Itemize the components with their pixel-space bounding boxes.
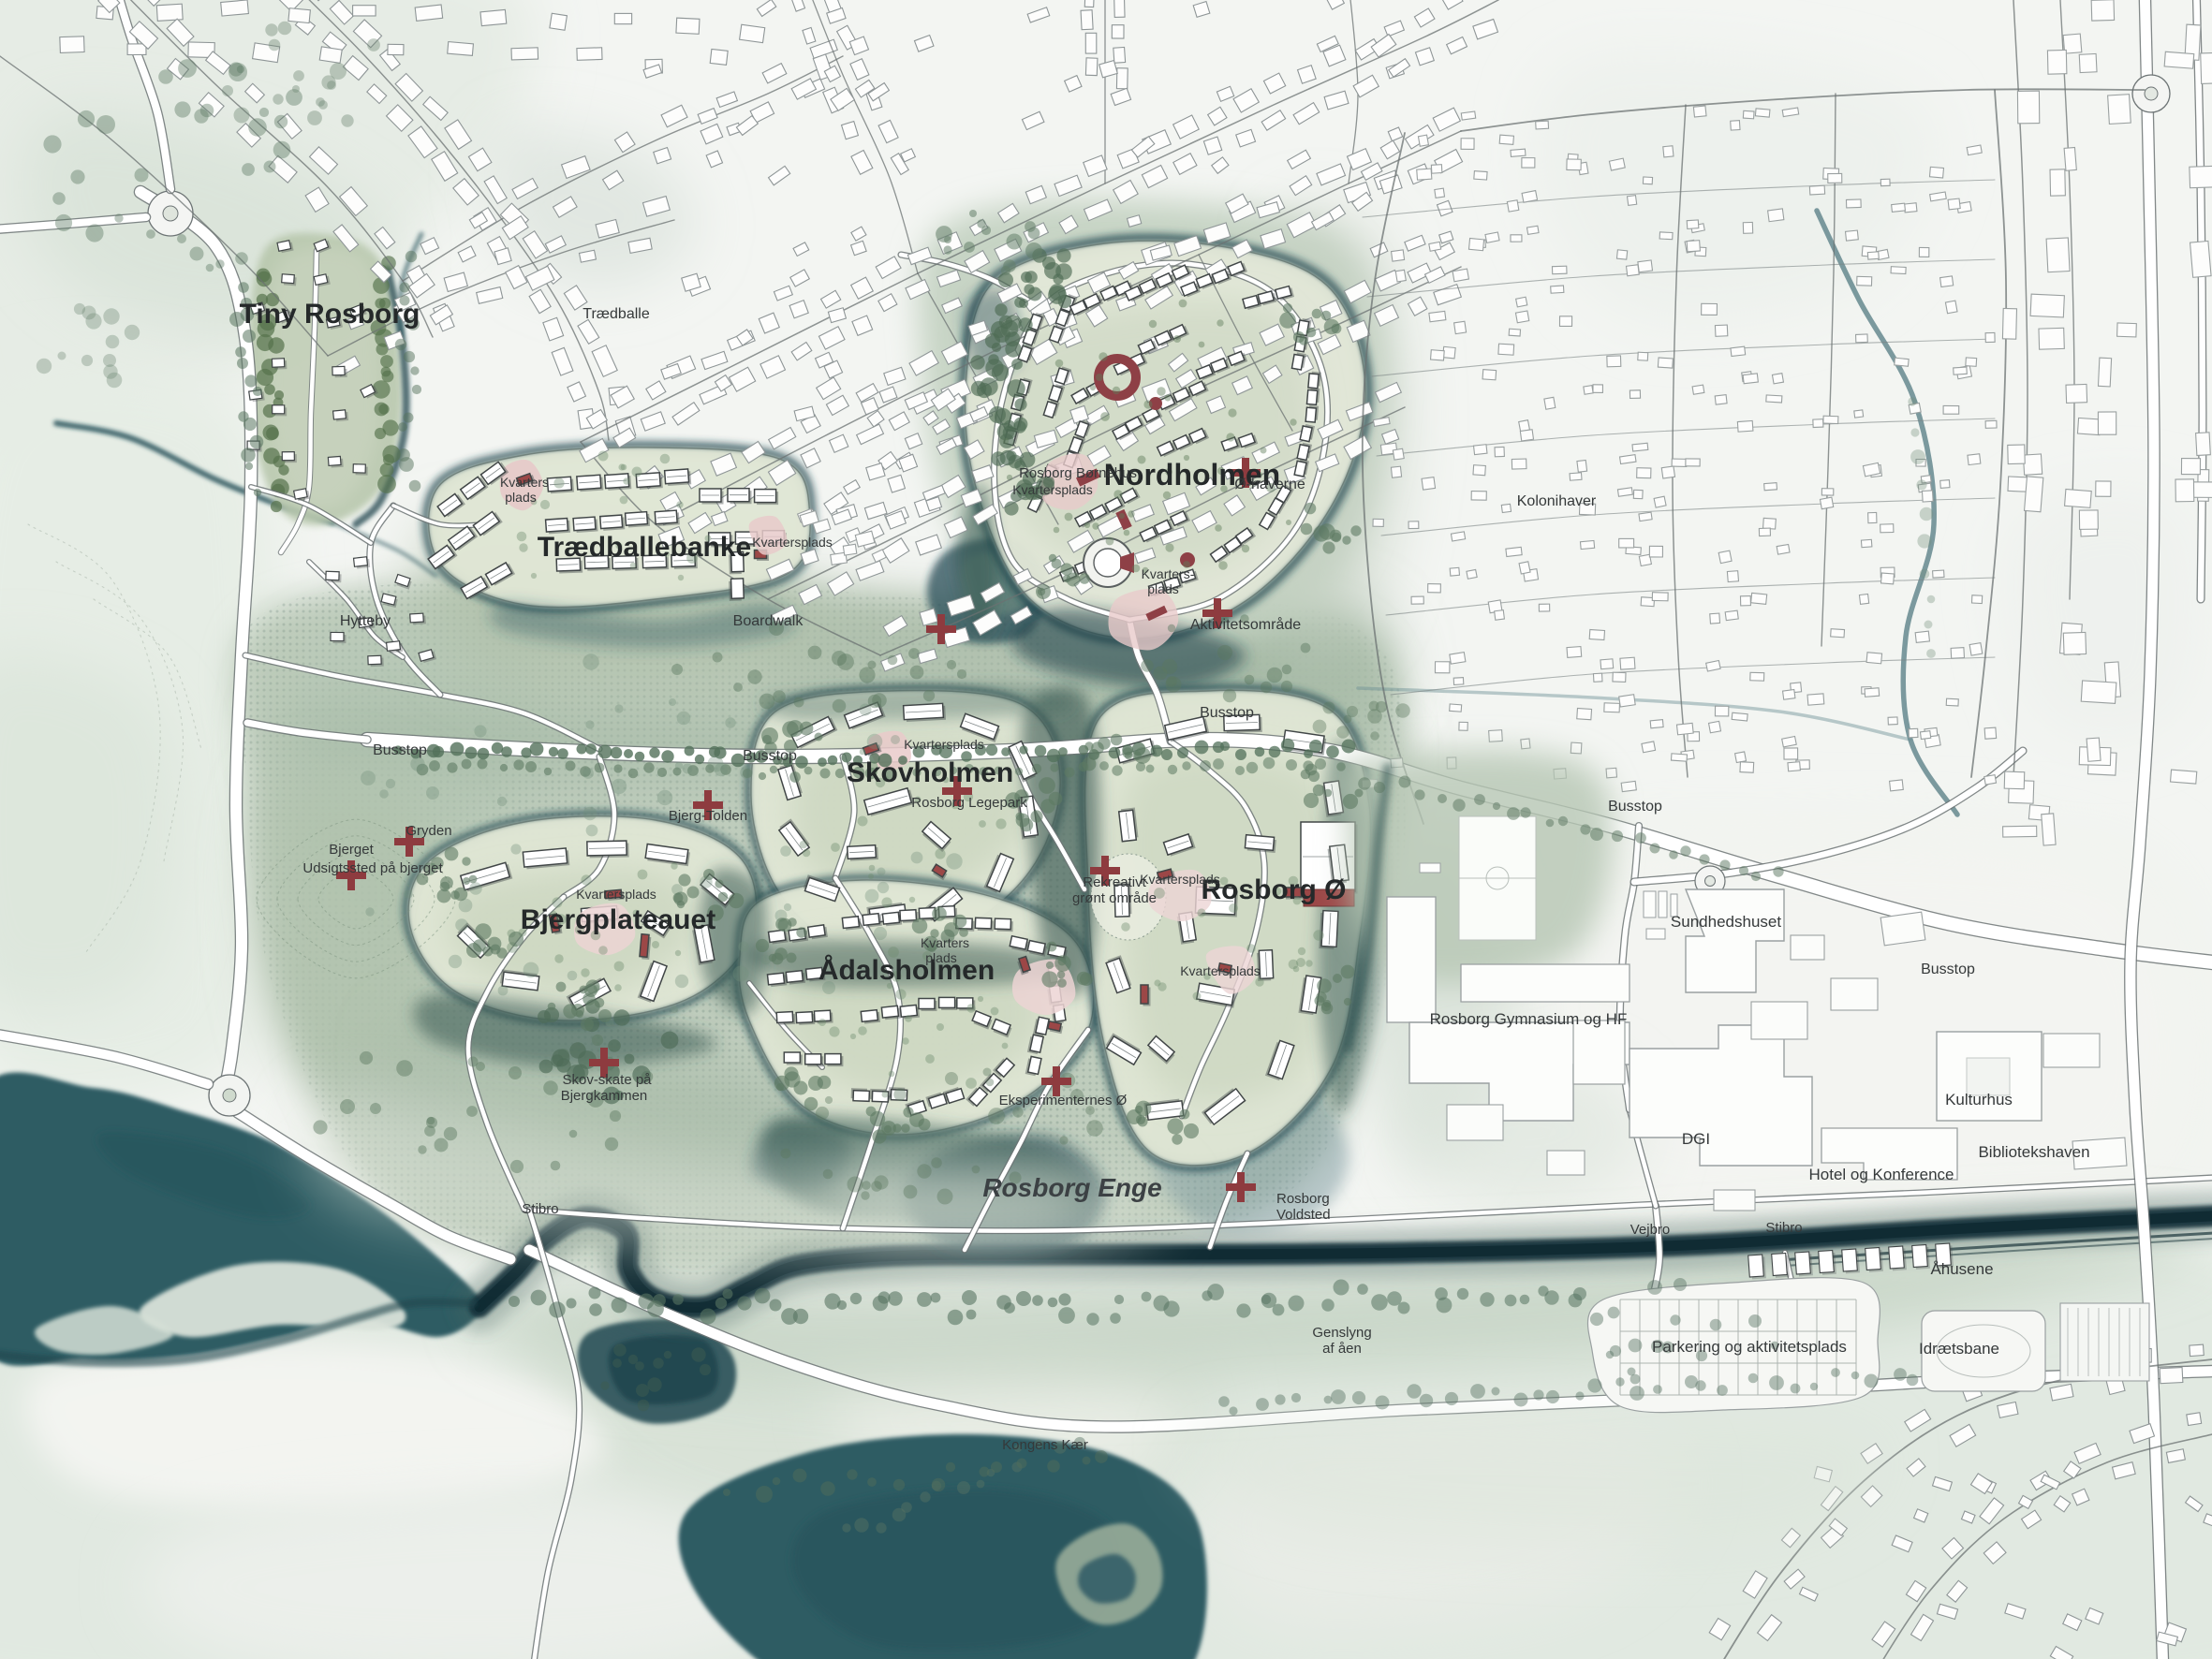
svg-text:Rosborg Børnehus: Rosborg Børnehus	[1019, 465, 1137, 481]
svg-text:Kvartersplads: Kvartersplads	[1180, 963, 1261, 978]
svg-text:plads: plads	[1147, 581, 1178, 596]
svg-text:Kvartersplads: Kvartersplads	[1012, 482, 1093, 497]
svg-text:Bjergkammen: Bjergkammen	[561, 1088, 648, 1104]
svg-text:Rosborg Ø: Rosborg Ø	[1202, 874, 1347, 905]
svg-text:Bjerget: Bjerget	[329, 842, 374, 858]
svg-text:Rekreativt: Rekreativt	[1083, 874, 1146, 890]
svg-text:Kolonihaver: Kolonihaver	[1517, 493, 1597, 509]
svg-text:Vejbro: Vejbro	[1630, 1222, 1671, 1238]
svg-text:Skov-skate på: Skov-skate på	[562, 1072, 652, 1088]
svg-text:Kongens Kær: Kongens Kær	[1002, 1437, 1088, 1453]
svg-text:Ådalsholmen: Ådalsholmen	[818, 955, 995, 986]
svg-text:Bibliotekshaven: Bibliotekshaven	[1978, 1143, 2089, 1161]
svg-text:Parkering og aktivitetsplads: Parkering og aktivitetsplads	[1652, 1338, 1847, 1356]
svg-text:Genslyng: Genslyng	[1312, 1325, 1371, 1341]
svg-text:Idrætsbane: Idrætsbane	[1919, 1340, 1999, 1358]
svg-text:Rosborg: Rosborg	[1276, 1191, 1330, 1207]
svg-text:Sundhedshuset: Sundhedshuset	[1671, 913, 1781, 931]
svg-text:Hytteby: Hytteby	[340, 613, 391, 629]
svg-text:Voldsted: Voldsted	[1276, 1207, 1331, 1223]
svg-text:Kvartersplads: Kvartersplads	[1140, 872, 1220, 887]
svg-text:Ø-haverne: Ø-haverne	[1234, 477, 1305, 492]
svg-text:Bjergplateauet: Bjergplateauet	[521, 904, 715, 935]
svg-text:Gryden: Gryden	[406, 823, 451, 839]
svg-text:Kvarters: Kvarters	[921, 935, 969, 950]
svg-text:Stibro: Stibro	[522, 1201, 558, 1217]
svg-text:grønt område: grønt område	[1072, 890, 1157, 906]
svg-text:Hotel og Konference: Hotel og Konference	[1809, 1166, 1954, 1183]
svg-text:Busstop: Busstop	[743, 748, 797, 764]
svg-text:Kulturhus: Kulturhus	[1945, 1091, 2013, 1108]
svg-text:Kvarters-: Kvarters-	[1142, 566, 1195, 581]
svg-text:Trædballe: Trædballe	[582, 306, 650, 322]
svg-text:Kvartersplads: Kvartersplads	[904, 737, 984, 752]
svg-text:Bjerg-Tolden: Bjerg-Tolden	[669, 808, 747, 824]
svg-text:Kvarters: Kvarters	[500, 475, 549, 490]
svg-text:Busstop: Busstop	[373, 742, 427, 758]
svg-text:Skovholmen: Skovholmen	[847, 757, 1013, 788]
svg-text:Rosborg Gymnasium og HF: Rosborg Gymnasium og HF	[1430, 1010, 1628, 1028]
svg-text:Tiny Rosborg: Tiny Rosborg	[240, 299, 420, 330]
svg-text:Åhusene: Åhusene	[1930, 1260, 1993, 1278]
svg-text:Kvartersplads: Kvartersplads	[752, 535, 833, 550]
svg-text:af åen: af åen	[1322, 1341, 1362, 1357]
svg-text:Busstop: Busstop	[1608, 799, 1662, 815]
svg-text:Rosborg Legepark: Rosborg Legepark	[911, 795, 1027, 811]
svg-text:Stibro: Stibro	[1765, 1220, 1802, 1236]
svg-text:Eksperimenternes Ø: Eksperimenternes Ø	[999, 1093, 1128, 1108]
svg-text:plads: plads	[505, 490, 536, 505]
svg-text:plads: plads	[925, 950, 956, 965]
svg-text:Boardwalk: Boardwalk	[733, 613, 804, 629]
svg-text:Busstop: Busstop	[1921, 962, 1975, 977]
svg-text:DGI: DGI	[1682, 1130, 1710, 1148]
svg-text:Trædballebanke: Trædballebanke	[538, 532, 751, 563]
svg-text:Busstop: Busstop	[1200, 705, 1254, 721]
svg-text:Udsigtssted på bjerget: Udsigtssted på bjerget	[302, 860, 443, 876]
svg-text:Rosborg Enge: Rosborg Enge	[982, 1173, 1161, 1202]
svg-text:Aktivitetsområde: Aktivitetsområde	[1190, 616, 1301, 633]
svg-text:Kvartersplads: Kvartersplads	[576, 887, 656, 902]
